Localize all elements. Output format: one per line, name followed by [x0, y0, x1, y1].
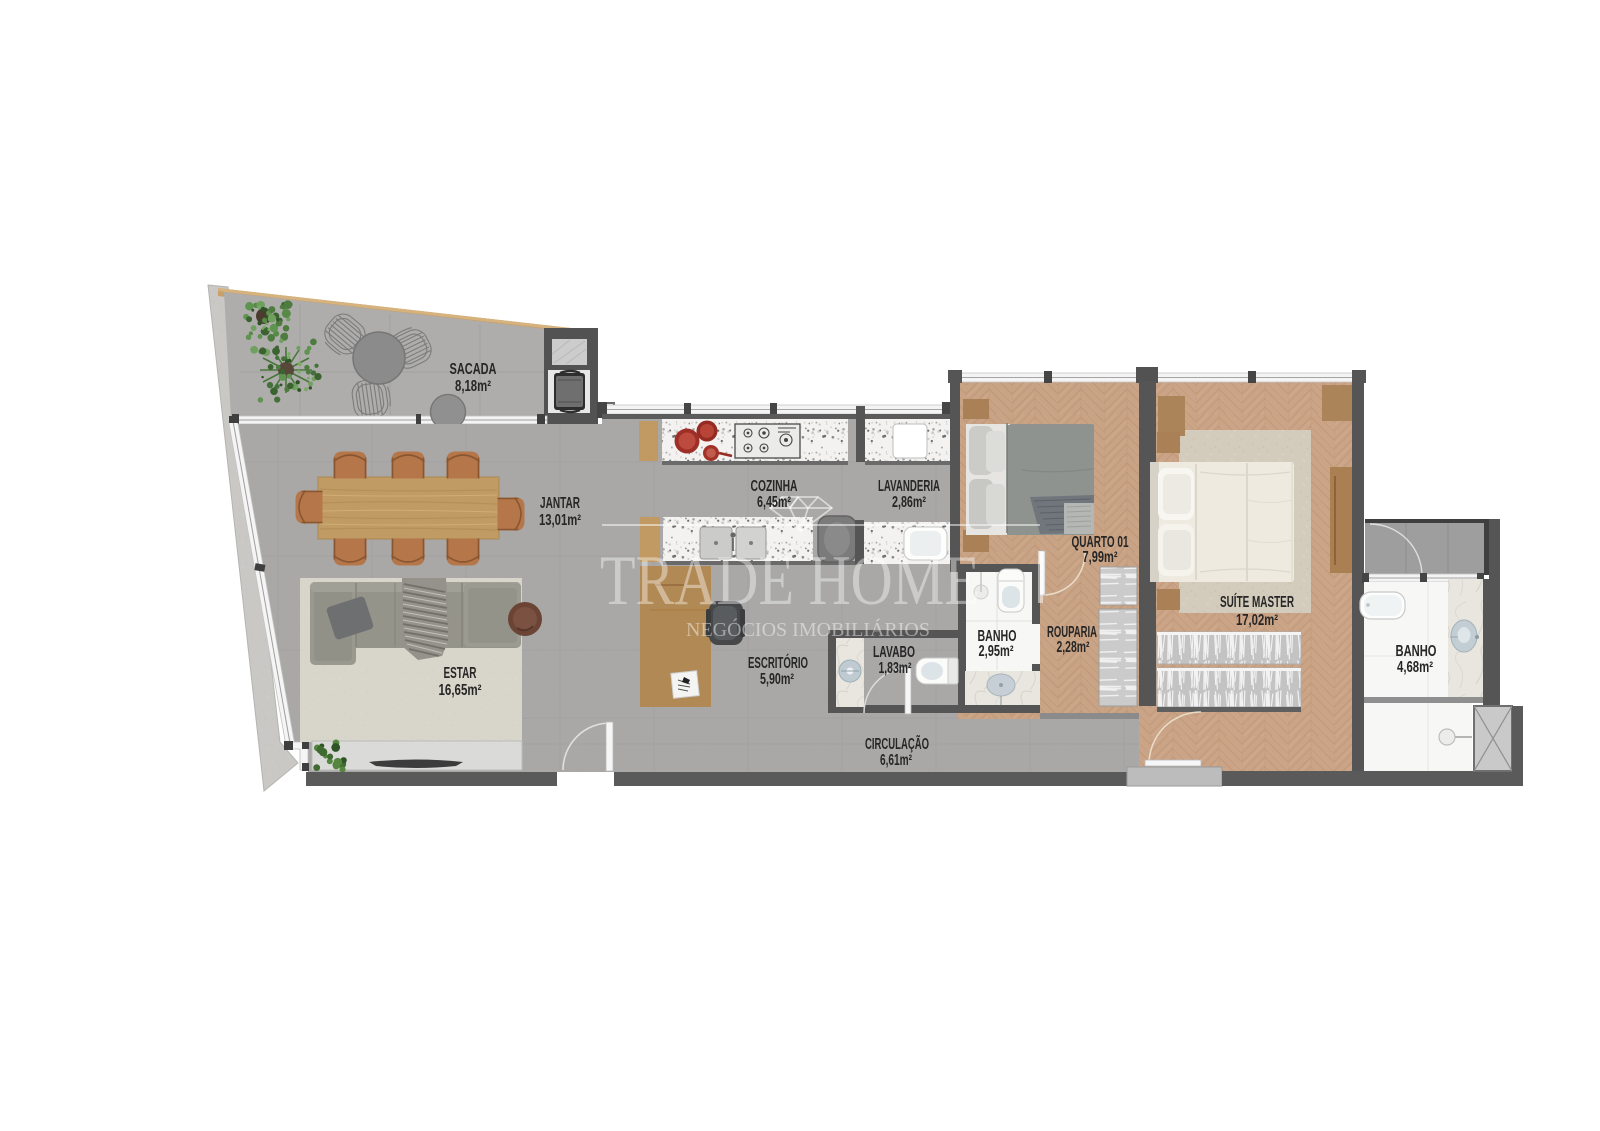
svg-text:ESCRITÓRIO: ESCRITÓRIO [748, 654, 808, 672]
svg-text:16,65m²: 16,65m² [439, 682, 482, 699]
svg-text:CIRCULAÇÃO: CIRCULAÇÃO [865, 735, 929, 753]
svg-text:2,28m²: 2,28m² [1057, 639, 1090, 656]
svg-text:SUÍTE MASTER: SUÍTE MASTER [1220, 594, 1294, 611]
svg-text:BANHO: BANHO [1396, 643, 1437, 660]
svg-text:LAVABO: LAVABO [873, 644, 915, 661]
svg-text:13,01m²: 13,01m² [539, 512, 581, 529]
svg-text:2,86m²: 2,86m² [892, 494, 926, 511]
svg-text:6,61m²: 6,61m² [880, 752, 912, 769]
svg-text:LAVANDERIA: LAVANDERIA [878, 478, 940, 495]
svg-text:JANTAR: JANTAR [540, 495, 580, 512]
svg-text:TRADE HOME: TRADE HOME [600, 542, 980, 620]
svg-text:1,83m²: 1,83m² [879, 660, 912, 677]
svg-text:ESTAR: ESTAR [444, 665, 477, 682]
svg-text:SACADA: SACADA [450, 361, 497, 378]
svg-text:NEGÓCIOS IMOBILIÁRIOS: NEGÓCIOS IMOBILIÁRIOS [686, 619, 930, 641]
svg-text:5,90m²: 5,90m² [760, 671, 794, 688]
svg-text:17,02m²: 17,02m² [1236, 612, 1278, 629]
svg-text:COZINHA: COZINHA [751, 478, 798, 495]
svg-text:4,68m²: 4,68m² [1397, 659, 1433, 676]
svg-text:7,99m²: 7,99m² [1083, 549, 1118, 566]
svg-text:6,45m²: 6,45m² [757, 494, 791, 511]
svg-text:8,18m²: 8,18m² [455, 378, 491, 395]
svg-text:2,95m²: 2,95m² [979, 643, 1014, 660]
